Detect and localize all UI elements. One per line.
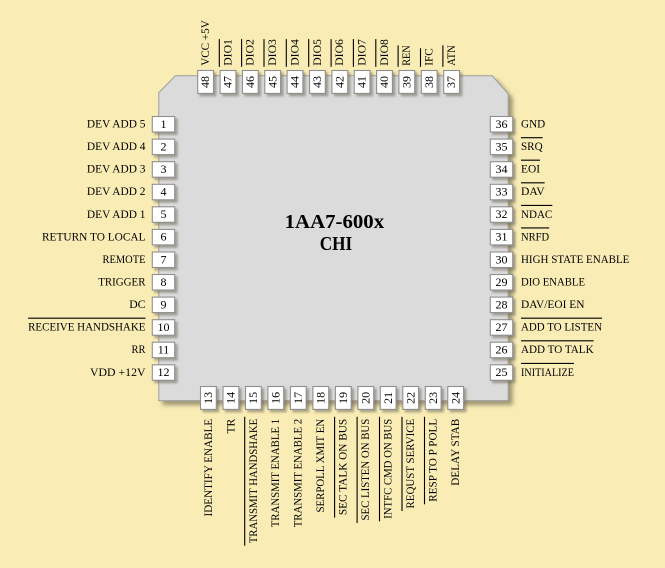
svg-text:35: 35 xyxy=(496,140,508,154)
svg-text:40: 40 xyxy=(377,76,391,88)
svg-text:RETURN TO LOCAL: RETURN TO LOCAL xyxy=(42,229,146,243)
svg-text:41: 41 xyxy=(355,76,369,88)
svg-text:DC: DC xyxy=(129,297,145,311)
svg-text:11: 11 xyxy=(158,343,170,357)
svg-text:1AA7-600x: 1AA7-600x xyxy=(285,211,385,233)
svg-text:2: 2 xyxy=(161,140,167,154)
svg-text:45: 45 xyxy=(265,76,279,88)
svg-text:17: 17 xyxy=(291,392,305,404)
svg-text:INITIALIZE: INITIALIZE xyxy=(521,365,574,379)
svg-text:IFC: IFC xyxy=(422,48,436,66)
svg-text:6: 6 xyxy=(161,230,167,244)
svg-text:10: 10 xyxy=(158,320,170,334)
svg-text:16: 16 xyxy=(268,392,282,404)
svg-text:DIO7: DIO7 xyxy=(355,39,369,66)
svg-text:32: 32 xyxy=(496,207,508,221)
svg-text:28: 28 xyxy=(496,298,508,312)
svg-text:TRIGGER: TRIGGER xyxy=(98,275,145,289)
svg-text:DIO5: DIO5 xyxy=(310,39,324,66)
svg-text:43: 43 xyxy=(310,76,324,88)
svg-text:VDD +12V: VDD +12V xyxy=(90,365,146,379)
svg-text:3: 3 xyxy=(161,162,167,176)
svg-text:31: 31 xyxy=(496,230,508,244)
svg-text:12: 12 xyxy=(158,365,170,379)
svg-text:TRANSMIT ENABLE 2: TRANSMIT ENABLE 2 xyxy=(291,419,305,528)
svg-text:NRFD: NRFD xyxy=(521,229,549,243)
svg-text:TRANSMIT HANDSHAKE: TRANSMIT HANDSHAKE xyxy=(246,419,260,544)
svg-text:DIO8: DIO8 xyxy=(377,39,391,66)
svg-text:SERPOLL XMIT EN: SERPOLL XMIT EN xyxy=(313,419,327,513)
svg-text:27: 27 xyxy=(496,320,508,334)
svg-text:RR: RR xyxy=(132,342,146,356)
svg-text:EOI: EOI xyxy=(521,162,540,176)
svg-text:18: 18 xyxy=(313,392,327,404)
svg-text:SEC LISTEN ON BUS: SEC LISTEN ON BUS xyxy=(358,419,372,521)
svg-text:RECEIVE HANDSHAKE: RECEIVE HANDSHAKE xyxy=(28,320,145,334)
svg-text:37: 37 xyxy=(444,76,458,88)
svg-text:INTFC CMD ON BUS: INTFC CMD ON BUS xyxy=(381,419,395,519)
svg-text:23: 23 xyxy=(426,392,440,404)
svg-text:TR: TR xyxy=(223,419,237,434)
svg-text:34: 34 xyxy=(496,162,508,176)
svg-text:TRANSMIT ENABLE 1: TRANSMIT ENABLE 1 xyxy=(268,419,282,528)
svg-text:DEV ADD 4: DEV ADD 4 xyxy=(87,139,146,153)
svg-text:RESP TO P POLL: RESP TO P POLL xyxy=(426,419,440,502)
svg-text:13: 13 xyxy=(201,392,215,404)
svg-text:SRQ: SRQ xyxy=(521,139,543,153)
svg-text:7: 7 xyxy=(161,252,167,266)
svg-text:SEC TALK ON BUS: SEC TALK ON BUS xyxy=(336,419,350,515)
svg-text:DIO3: DIO3 xyxy=(265,39,279,66)
svg-text:DELAY STAB: DELAY STAB xyxy=(448,419,462,486)
svg-text:29: 29 xyxy=(496,275,508,289)
svg-text:47: 47 xyxy=(221,76,235,88)
svg-text:ADD TO TALK: ADD TO TALK xyxy=(521,342,594,356)
svg-text:9: 9 xyxy=(161,298,167,312)
svg-text:4: 4 xyxy=(161,185,167,199)
svg-text:REMOTE: REMOTE xyxy=(103,252,146,266)
svg-text:19: 19 xyxy=(336,392,350,404)
svg-text:30: 30 xyxy=(496,252,508,266)
svg-text:5: 5 xyxy=(161,207,167,221)
svg-text:26: 26 xyxy=(496,343,508,357)
svg-text:IDENTIFY ENABLE: IDENTIFY ENABLE xyxy=(201,419,215,517)
svg-text:22: 22 xyxy=(403,392,417,404)
svg-text:48: 48 xyxy=(198,76,212,88)
svg-text:DIO4: DIO4 xyxy=(287,39,301,66)
svg-text:42: 42 xyxy=(332,76,346,88)
svg-text:21: 21 xyxy=(381,392,395,404)
svg-text:CHI: CHI xyxy=(320,233,353,255)
svg-text:DEV ADD 2: DEV ADD 2 xyxy=(87,184,146,198)
svg-text:REQUST SERVICE: REQUST SERVICE xyxy=(403,419,417,509)
svg-text:NDAC: NDAC xyxy=(521,207,552,221)
svg-text:44: 44 xyxy=(288,76,302,88)
svg-text:25: 25 xyxy=(496,365,508,379)
svg-text:DIO2: DIO2 xyxy=(243,39,257,66)
svg-text:DIO ENABLE: DIO ENABLE xyxy=(521,275,585,289)
svg-text:DIO6: DIO6 xyxy=(332,39,346,66)
svg-text:DEV ADD 1: DEV ADD 1 xyxy=(87,207,146,221)
svg-text:ADD TO LISTEN: ADD TO LISTEN xyxy=(521,320,602,334)
svg-text:14: 14 xyxy=(224,392,238,404)
svg-text:1: 1 xyxy=(161,117,167,131)
svg-text:39: 39 xyxy=(399,76,413,88)
svg-text:DEV ADD 3: DEV ADD 3 xyxy=(87,162,146,176)
svg-text:GND: GND xyxy=(521,117,546,131)
svg-text:VCC +5V: VCC +5V xyxy=(198,20,212,66)
svg-text:24: 24 xyxy=(448,392,462,404)
svg-text:HIGH STATE ENABLE: HIGH STATE ENABLE xyxy=(521,252,629,266)
svg-text:DIO1: DIO1 xyxy=(220,39,234,66)
svg-text:38: 38 xyxy=(422,76,436,88)
svg-text:DEV ADD 5: DEV ADD 5 xyxy=(87,117,146,131)
svg-text:20: 20 xyxy=(358,392,372,404)
svg-text:DAV: DAV xyxy=(521,184,545,198)
svg-text:ATN: ATN xyxy=(444,45,458,66)
svg-text:36: 36 xyxy=(496,117,508,131)
svg-text:33: 33 xyxy=(496,185,508,199)
svg-text:DAV/EOI EN: DAV/EOI EN xyxy=(521,297,585,311)
svg-text:46: 46 xyxy=(243,76,257,88)
svg-text:REN: REN xyxy=(399,45,413,66)
svg-text:15: 15 xyxy=(246,392,260,404)
svg-text:8: 8 xyxy=(161,275,167,289)
